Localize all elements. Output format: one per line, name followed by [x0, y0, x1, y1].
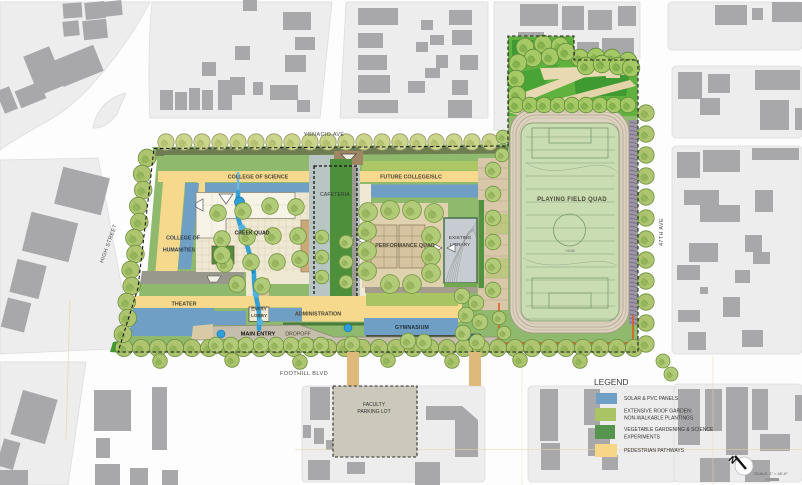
svg-text:EXISTING: EXISTING [449, 235, 472, 241]
svg-text:VEGETABLE GARDENING & SCIENCE: VEGETABLE GARDENING & SCIENCE [624, 427, 714, 433]
svg-text:GYMNASIUM: GYMNASIUM [395, 325, 429, 331]
svg-text:EXPERIMENTS: EXPERIMENTS [624, 435, 661, 441]
svg-text:PARKING LOT: PARKING LOT [357, 409, 390, 415]
svg-text:LEGEND: LEGEND [594, 377, 628, 387]
svg-text:+4130: +4130 [565, 249, 575, 253]
svg-text:PLAYING FIELD QUAD: PLAYING FIELD QUAD [537, 197, 607, 203]
svg-text:MAIN ENTRY: MAIN ENTRY [241, 332, 276, 338]
svg-text:SOLAR & PVC PANELS: SOLAR & PVC PANELS [624, 396, 679, 402]
svg-text:FUTURE COLLEGE/SLC: FUTURE COLLEGE/SLC [380, 175, 442, 181]
svg-text:PEDESTRIAN PATHWAYS: PEDESTRIAN PATHWAYS [624, 448, 685, 454]
svg-text:HUMANITIES: HUMANITIES [163, 248, 196, 254]
svg-text:YGNACIO AVE: YGNACIO AVE [304, 132, 345, 138]
svg-text:FACULTY: FACULTY [363, 402, 386, 408]
svg-text:NON-WALKABLE PLANTINGS: NON-WALKABLE PLANTINGS [624, 416, 694, 422]
svg-text:COLLEGE OF SCIENCE: COLLEGE OF SCIENCE [228, 175, 289, 181]
svg-text:DROPOFF: DROPOFF [285, 332, 310, 338]
svg-text:47TH AVE: 47TH AVE [659, 218, 665, 246]
svg-text:COLLEGE OF: COLLEGE OF [166, 236, 200, 242]
svg-text:CREEK QUAD: CREEK QUAD [235, 231, 270, 237]
svg-text:CAFETERIA: CAFETERIA [320, 192, 350, 198]
svg-text:ADMINISTRATION: ADMINISTRATION [295, 312, 341, 318]
svg-text:THEATER: THEATER [171, 302, 196, 308]
svg-text:LOBBY: LOBBY [251, 313, 267, 318]
svg-text:FOOTHILL BLVD: FOOTHILL BLVD [280, 371, 328, 377]
svg-text:PERFORMANCE QUAD: PERFORMANCE QUAD [375, 243, 435, 249]
svg-text:EXTENSIVE ROOF GARDEN:: EXTENSIVE ROOF GARDEN: [624, 409, 692, 415]
svg-text:ENTRY: ENTRY [251, 307, 266, 312]
svg-text:SCALE: 1" = 40'-0": SCALE: 1" = 40'-0" [754, 471, 788, 476]
